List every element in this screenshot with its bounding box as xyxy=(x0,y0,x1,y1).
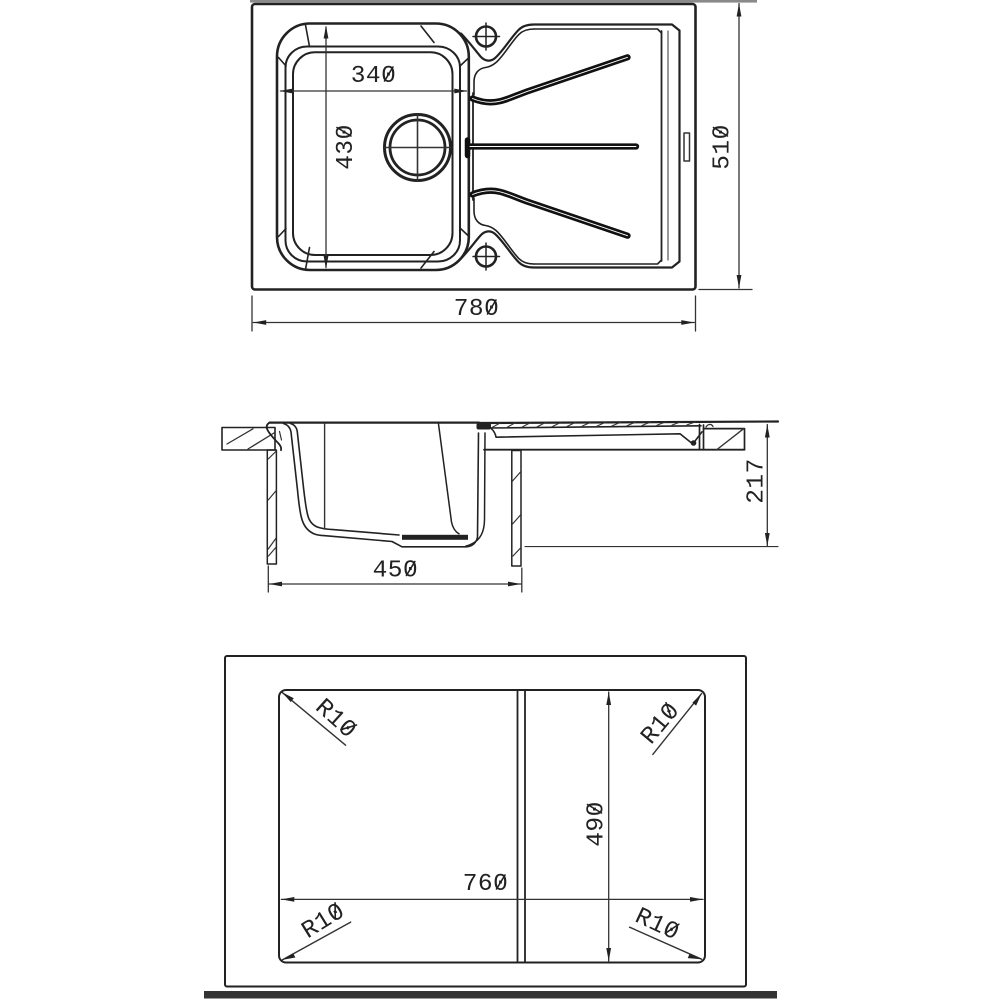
svg-text:R10: R10 xyxy=(298,898,351,945)
svg-text:217: 217 xyxy=(743,458,770,504)
svg-text:760: 760 xyxy=(463,871,509,898)
svg-text:510: 510 xyxy=(709,124,736,170)
svg-text:450: 450 xyxy=(373,557,419,584)
svg-text:R10: R10 xyxy=(636,698,686,750)
svg-text:R10: R10 xyxy=(630,904,683,948)
svg-text:340: 340 xyxy=(351,63,397,90)
svg-text:780: 780 xyxy=(454,296,500,323)
svg-text:490: 490 xyxy=(583,801,610,847)
svg-text:430: 430 xyxy=(333,124,360,170)
svg-text:R10: R10 xyxy=(309,694,361,745)
